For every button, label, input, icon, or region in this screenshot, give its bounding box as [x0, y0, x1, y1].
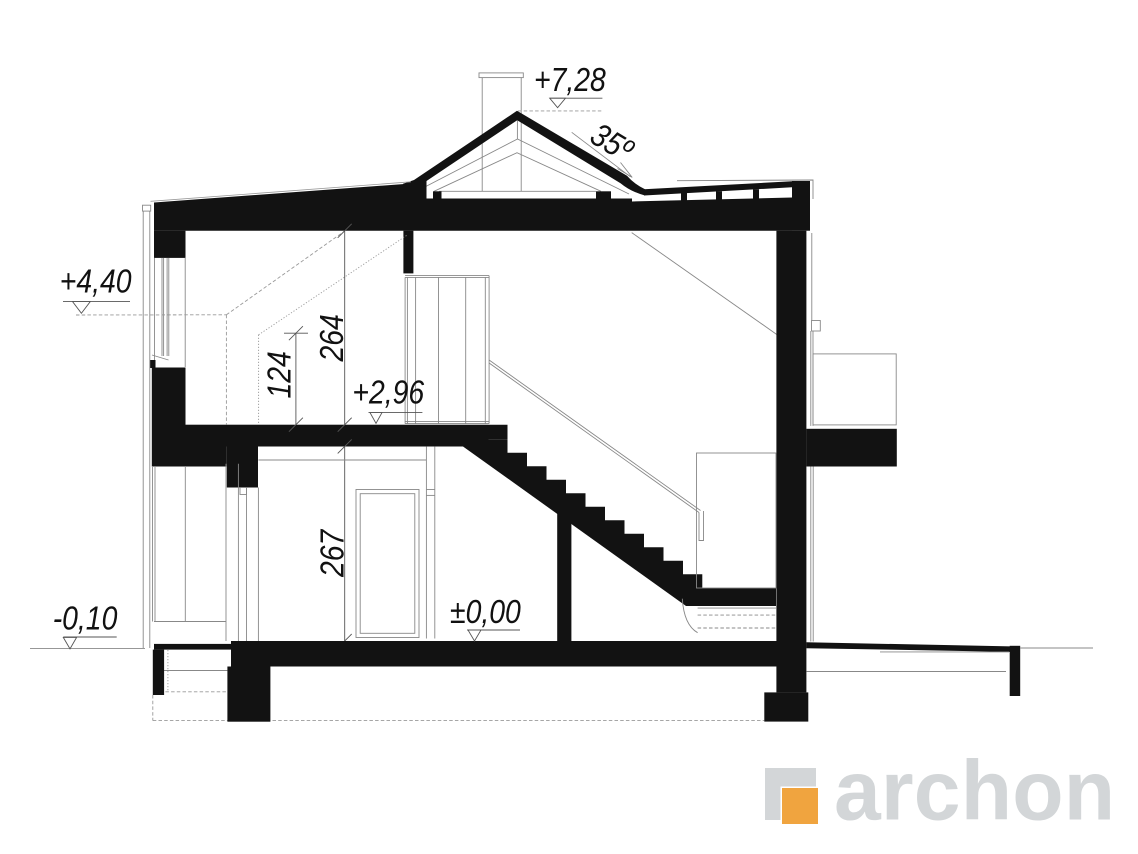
- svg-text:archon: archon: [834, 744, 1115, 838]
- svg-text:+2,96: +2,96: [352, 373, 425, 411]
- svg-text:267: 267: [313, 528, 351, 578]
- svg-text:-0,10: -0,10: [53, 599, 118, 637]
- svg-text:124: 124: [260, 351, 298, 398]
- svg-text:264: 264: [313, 314, 351, 362]
- svg-text:+4,40: +4,40: [60, 262, 132, 300]
- svg-text:+7,28: +7,28: [534, 61, 606, 99]
- svg-text:±0,00: ±0,00: [450, 593, 521, 631]
